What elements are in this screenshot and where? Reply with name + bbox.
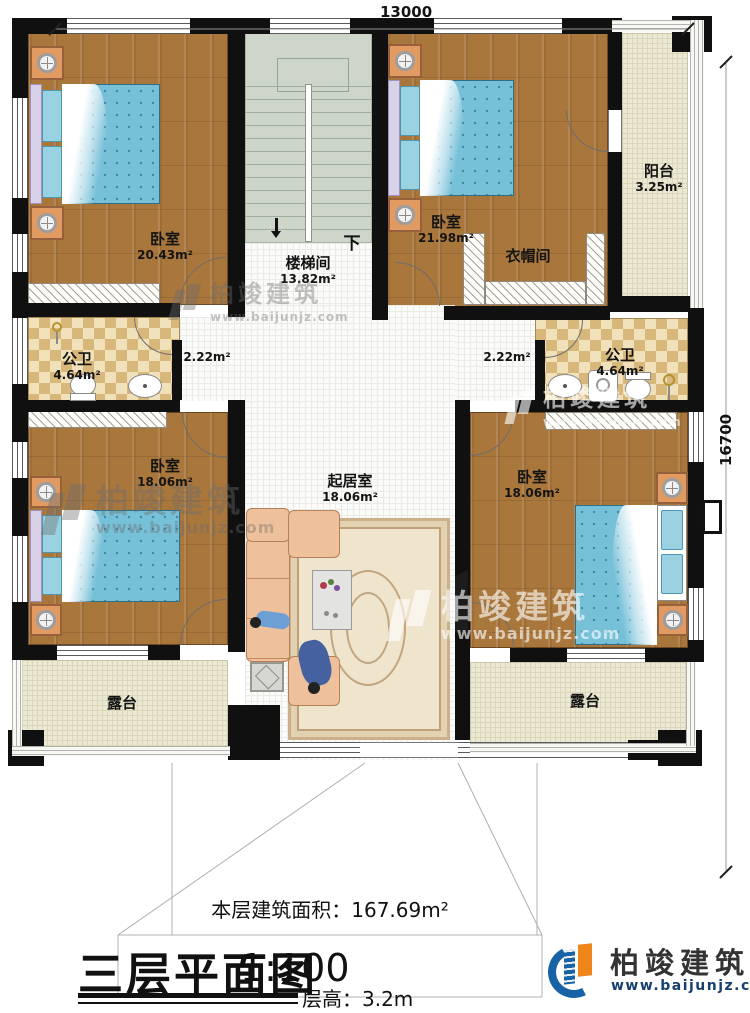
brand-logo-building-icon (578, 943, 592, 976)
room-label-balcony: 阳台 3.25m² (635, 162, 682, 194)
room-label-living: 起居室 18.06m² (322, 472, 378, 504)
floor-height-value: 3.2m (362, 987, 413, 1011)
room-label-bedroom-mr: 卧室 18.06m² (504, 468, 560, 500)
brand-name: 柏竣建筑 (610, 940, 750, 982)
room-label-cloakroom: 衣帽间 (505, 247, 550, 265)
room-label-bedroom-ml: 卧室 18.06m² (137, 457, 193, 489)
room-label-terrace-left: 露台 (107, 694, 137, 712)
floor-area-value: 167.69m² (351, 898, 448, 922)
title-underline-thin (78, 1002, 298, 1004)
room-label-terrace-right: 露台 (570, 692, 600, 710)
floor-plan-page: 13000 16700 卧室 20.43m² 楼梯间 13.82m² 下 卧室 … (0, 0, 750, 1013)
room-label-stairwell: 楼梯间 13.82m² (280, 254, 336, 286)
hall-left-area: 2.22m² (183, 350, 230, 364)
room-label-bath-left: 公卫 4.64m² (53, 350, 100, 382)
floor-area-annotation: 本层建筑面积：167.69m² (211, 894, 448, 923)
hall-right-area: 2.22m² (483, 350, 530, 364)
room-label-bedroom-tr: 卧室 21.98m² (418, 213, 474, 245)
brand-website: www.baijunjz.com (611, 978, 750, 994)
dimension-right: 16700 (717, 414, 735, 466)
brand-logo-building-icon (564, 949, 575, 984)
floor-height: 层高：3.2m (302, 983, 413, 1012)
brand-logo: 柏竣建筑 www.baijunjz.com (548, 938, 738, 1008)
title-underline-thick (78, 993, 298, 998)
dimension-top: 13000 (380, 3, 432, 21)
room-label-bath-right: 公卫 4.64m² (596, 346, 643, 378)
floor-area-label: 本层建筑面积： (211, 898, 351, 922)
stair-down-label: 下 (344, 234, 361, 254)
floor-height-label: 层高： (302, 987, 362, 1011)
dimension-linework (0, 0, 750, 1013)
room-label-bedroom-tl: 卧室 20.43m² (137, 230, 193, 262)
